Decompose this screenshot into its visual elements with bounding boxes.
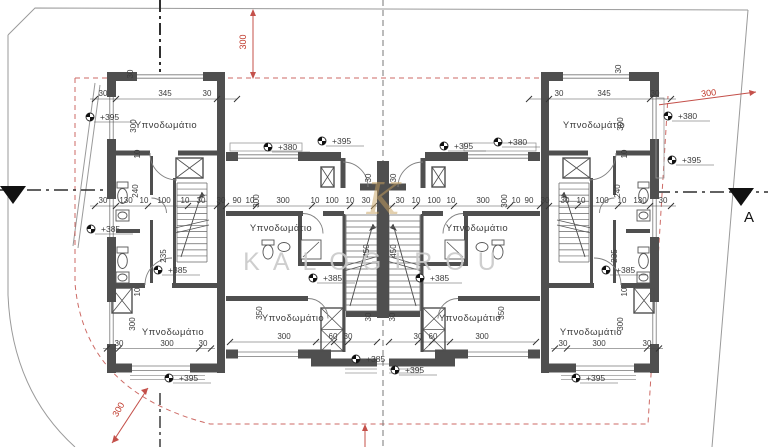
dim-label: 100 (157, 196, 171, 205)
elevation-symbol (664, 112, 672, 120)
elevation-symbol (391, 366, 399, 374)
red-dim-label: 300 (701, 87, 717, 99)
elevation-label: +395 (332, 136, 351, 146)
boundary-left-retaining (73, 83, 100, 248)
elevation-label: +385 (168, 265, 187, 275)
elevation-symbol (154, 266, 162, 274)
dim-label: 350 (497, 306, 506, 320)
dim-label: 30 (197, 196, 206, 205)
dim-label: 300 (616, 317, 625, 331)
dim-label: 130 (633, 196, 647, 205)
elevation-label: +395 (586, 373, 605, 383)
elevation-label: +395 (682, 155, 701, 165)
red-arrow (112, 435, 119, 443)
elevation-label: +395 (100, 112, 119, 122)
dim-label: 30 (541, 196, 550, 205)
dim-label: 10 (620, 149, 629, 158)
section-label: A (744, 209, 754, 226)
red-arrow (250, 9, 256, 16)
dim-label: 235 (610, 249, 619, 263)
dim-label: 300 (129, 119, 138, 133)
dim-label: 300 (276, 196, 290, 205)
dim-label: 300 (252, 194, 261, 208)
dim-label: 300 (476, 196, 490, 205)
dim-label: 30 (115, 339, 124, 348)
dim-label: 10 (412, 196, 421, 205)
elevation-symbol (668, 156, 676, 164)
dim-label: 60 (429, 332, 438, 341)
red-dim-label: 300 (110, 400, 126, 418)
boundary-left-curve (8, 35, 75, 447)
dim-label: 90 (233, 196, 242, 205)
dim-label: 10 (577, 196, 586, 205)
dim-label: 350 (255, 306, 264, 320)
dim-label: 10 (140, 196, 149, 205)
elevation-symbol (572, 374, 580, 382)
dim-label: 30 (364, 312, 373, 321)
room-label: Υπνοδωμάτιο (262, 313, 324, 324)
section-triangle-left (0, 186, 26, 204)
dim-label: 240 (131, 184, 140, 198)
dim-label: 30 (614, 64, 623, 73)
elevation-label: +395 (179, 373, 198, 383)
watermark-text: KALOGIROU (243, 248, 509, 276)
dim-label: 30 (651, 89, 660, 98)
elevation-label: +385 (101, 224, 120, 234)
room-label: Υπνοδωμάτιο (135, 120, 197, 131)
dim-label: 10 (512, 196, 521, 205)
dim-label: 10 (181, 196, 190, 205)
dim-label: 300 (277, 332, 291, 341)
room-label: Υπνοδωμάτιο (250, 223, 312, 234)
dim-label: 100 (325, 196, 339, 205)
dim-label: 300 (616, 117, 625, 131)
dim-label: 100 (427, 196, 441, 205)
elevation-symbol (86, 113, 94, 121)
dim-label: 30 (217, 196, 226, 205)
dim-label: 30 (126, 69, 135, 78)
dim-label: 300 (500, 194, 509, 208)
elevation-symbol (165, 374, 173, 382)
elevation-symbol (494, 138, 502, 146)
floor-plan-canvas: 300 300 300 Υπνοδωμάτιο Υπνοδωμάτιο Υπνο… (0, 0, 768, 447)
elevation-label: +380 (278, 142, 297, 152)
dim-label: 10 (311, 196, 320, 205)
dim-label: 235 (159, 249, 168, 263)
dim-label: 30 (203, 89, 212, 98)
elevation-symbol (264, 143, 272, 151)
elevation-label: +380 (678, 111, 697, 121)
floor-plan-page: 300 300 300 Υπνοδωμάτιο Υπνοδωμάτιο Υπνο… (0, 0, 768, 447)
red-arrow (749, 90, 756, 96)
dim-label: 30 (559, 339, 568, 348)
dim-label: 10 (133, 287, 142, 296)
dim-label: 90 (525, 196, 534, 205)
elevation-label: +385 (366, 354, 385, 364)
dim-label: 300 (160, 339, 174, 348)
elevation-label: +395 (405, 365, 424, 375)
dim-label: 30 (344, 332, 353, 341)
dim-label: 345 (597, 89, 611, 98)
elevation-label: +395 (454, 141, 473, 151)
red-arrow (362, 424, 368, 431)
elevation-label: +385 (616, 265, 635, 275)
dim-label: 30 (643, 339, 652, 348)
dim-label: 345 (158, 89, 172, 98)
dim-label: 30 (659, 196, 668, 205)
dim-label: 60 (329, 332, 338, 341)
dim-label: 30 (561, 196, 570, 205)
dim-label: 10 (133, 149, 142, 158)
elevation-symbol (318, 137, 326, 145)
dim-label: 300 (475, 332, 489, 341)
room-label: Υπνοδωμάτιο (446, 223, 508, 234)
boundary-top (8, 8, 748, 35)
dim-label: 30 (555, 89, 564, 98)
room-label: Υπνοδωμάτιο (439, 313, 501, 324)
red-dim-label: 300 (238, 34, 248, 49)
dim-label: 30 (388, 312, 397, 321)
elevation-symbol (87, 225, 95, 233)
dim-label: 30 (99, 89, 108, 98)
elevation-symbol (352, 355, 360, 363)
dim-label: 300 (592, 339, 606, 348)
dim-label: 30 (199, 339, 208, 348)
dim-label: 30 (414, 332, 423, 341)
dim-label: 10 (447, 196, 456, 205)
elevation-label: +380 (508, 137, 527, 147)
room-label: Υπνοδωμάτιο (560, 327, 622, 338)
dim-label: 10 (620, 287, 629, 296)
dim-label: 300 (128, 317, 137, 331)
elevation-symbol (440, 142, 448, 150)
elevation-symbol (602, 266, 610, 274)
dim-label: 100 (595, 196, 609, 205)
room-label: Υπνοδωμάτιο (142, 327, 204, 338)
dim-label: 30 (99, 196, 108, 205)
dim-label: 240 (613, 184, 622, 198)
watermark-logo: K (366, 174, 402, 225)
boundary-right-diagonal (712, 10, 748, 447)
dim-label: 10 (346, 196, 355, 205)
